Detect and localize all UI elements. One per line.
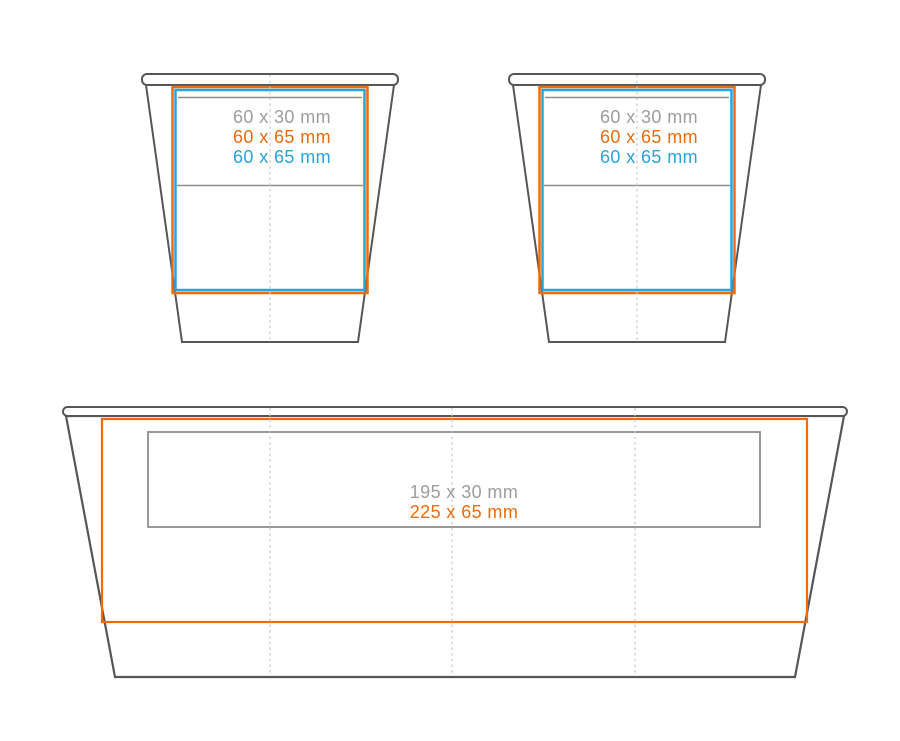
cup-right-dimension-orange: 60 x 65 mm — [600, 127, 698, 147]
print-template-diagram: 60 x 30 mm 60 x 65 mm 60 x 65 mm 60 x 30… — [0, 0, 900, 741]
wrap-view: 195 x 30 mm 225 x 65 mm — [63, 407, 847, 677]
cup-right-dimension-gray: 60 x 30 mm — [600, 107, 698, 127]
cup-right: 60 x 30 mm 60 x 65 mm 60 x 65 mm — [509, 74, 765, 342]
wrap-dimension-orange: 225 x 65 mm — [410, 502, 518, 522]
wrap-body-outline — [66, 416, 844, 677]
cup-left-dimension-gray: 60 x 30 mm — [233, 107, 331, 127]
wrap-rim — [63, 407, 847, 416]
cup-left: 60 x 30 mm 60 x 65 mm 60 x 65 mm — [142, 74, 398, 342]
cup-left-dimension-orange: 60 x 65 mm — [233, 127, 331, 147]
diagram-svg: 60 x 30 mm 60 x 65 mm 60 x 65 mm 60 x 30… — [0, 0, 900, 741]
cup-right-dimension-blue: 60 x 65 mm — [600, 147, 698, 167]
cup-left-dimension-blue: 60 x 65 mm — [233, 147, 331, 167]
wrap-dimension-gray: 195 x 30 mm — [410, 482, 518, 502]
